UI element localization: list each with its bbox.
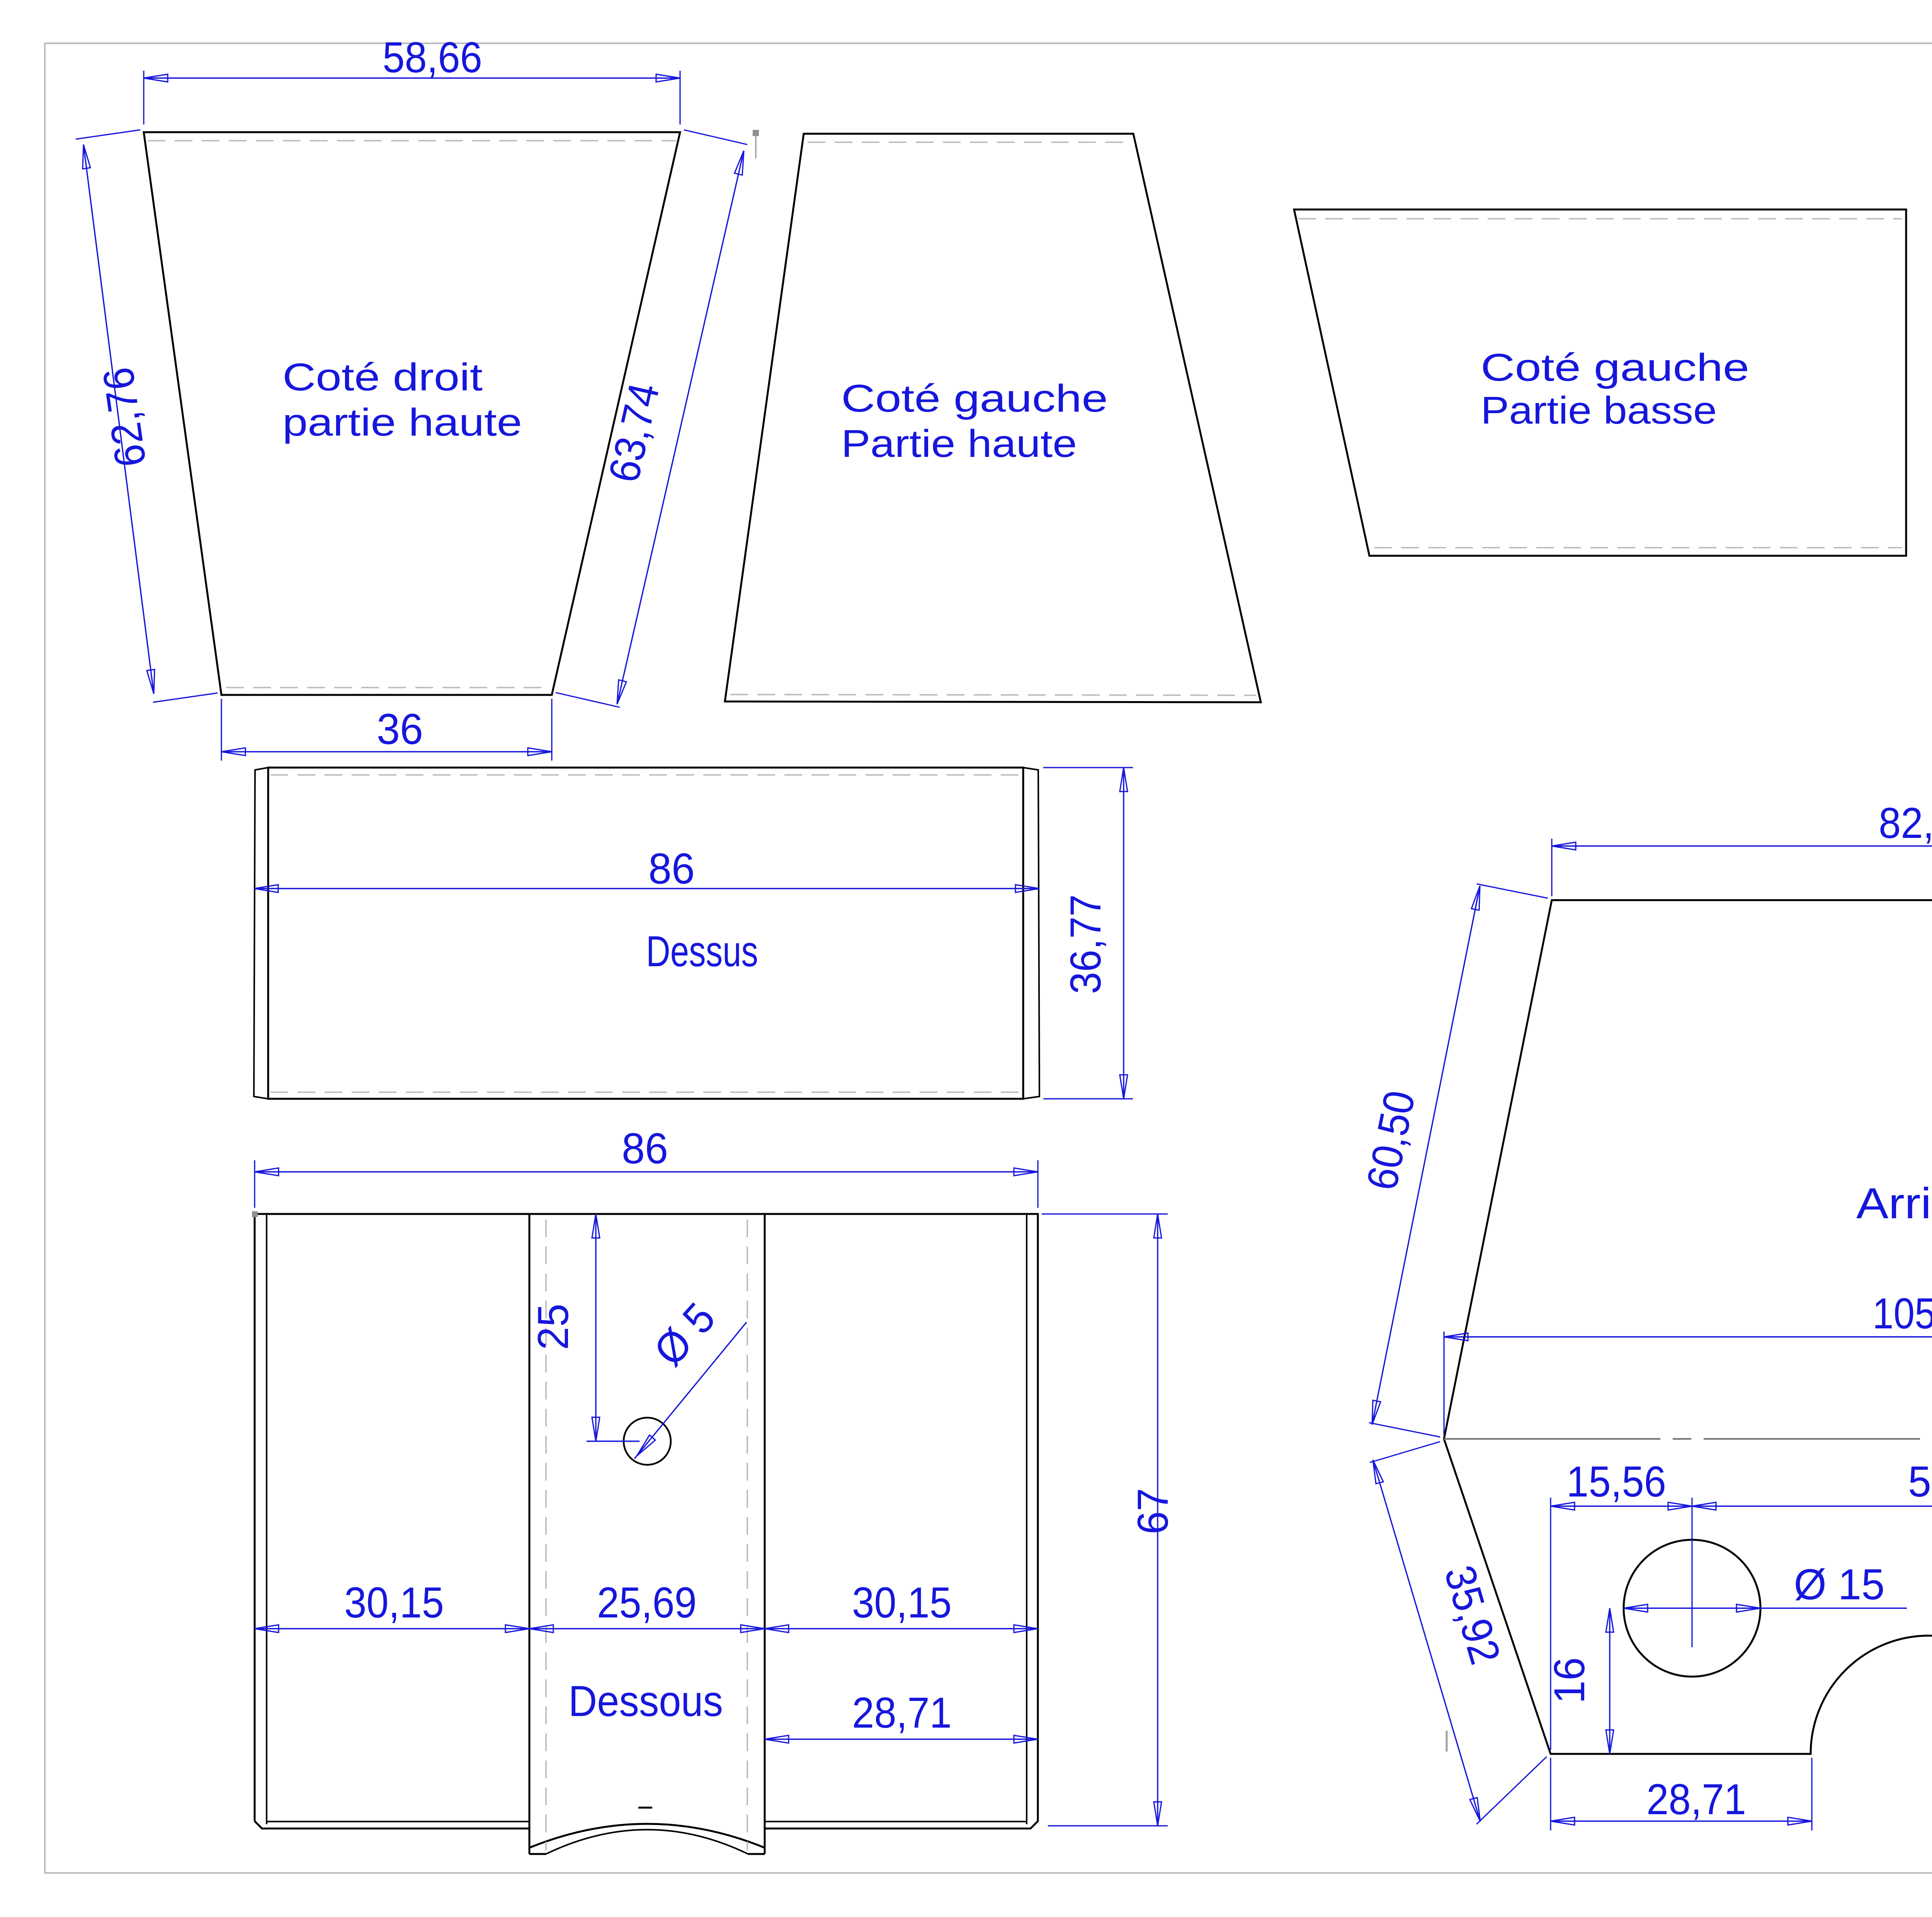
svg-text:58,66: 58,66 — [383, 33, 482, 82]
svg-text:82,71: 82,71 — [1879, 799, 1932, 847]
svg-text:Ø 15: Ø 15 — [1794, 1560, 1885, 1609]
svg-text:30,15: 30,15 — [344, 1578, 444, 1627]
svg-text:Partie basse: Partie basse — [1481, 389, 1717, 432]
svg-text:16: 16 — [1545, 1657, 1594, 1704]
svg-text:86: 86 — [648, 844, 695, 893]
svg-text:67: 67 — [1129, 1488, 1177, 1534]
svg-text:28,71: 28,71 — [852, 1689, 952, 1737]
svg-text:Arrière: Arrière — [1856, 1179, 1932, 1227]
svg-text:Coté droit: Coté droit — [282, 356, 483, 399]
svg-text:30,15: 30,15 — [852, 1578, 952, 1627]
svg-text:52: 52 — [1908, 1457, 1932, 1506]
svg-text:Coté gauche: Coté gauche — [1481, 346, 1749, 389]
svg-text:15,56: 15,56 — [1566, 1457, 1666, 1506]
svg-text:28,71: 28,71 — [1646, 1775, 1746, 1823]
svg-text:105,78: 105,78 — [1872, 1289, 1932, 1338]
svg-text:25: 25 — [529, 1304, 577, 1350]
svg-text:Partie haute: Partie haute — [841, 422, 1077, 465]
svg-text:Coté gauche: Coté gauche — [841, 377, 1108, 420]
svg-text:25,69: 25,69 — [597, 1578, 697, 1627]
svg-text:36: 36 — [377, 705, 423, 753]
svg-text:36,77: 36,77 — [1061, 894, 1110, 994]
svg-text:Dessous: Dessous — [568, 1677, 723, 1725]
svg-text:Dessus: Dessus — [646, 927, 758, 976]
svg-text:86: 86 — [622, 1124, 668, 1173]
svg-text:partie haute: partie haute — [282, 401, 522, 444]
